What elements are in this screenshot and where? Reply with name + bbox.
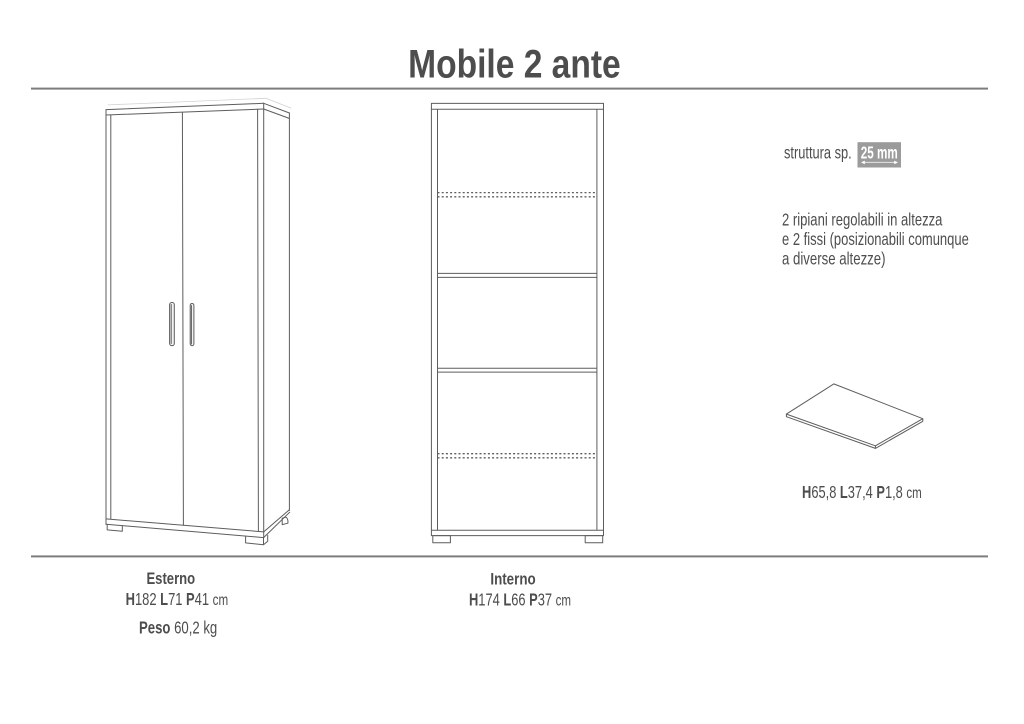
- svg-text:H174 L66 P37 cm: H174 L66 P37 cm: [469, 591, 571, 610]
- svg-text:a diverse altezze): a diverse altezze): [782, 250, 886, 269]
- svg-text:25 mm: 25 mm: [861, 143, 898, 163]
- svg-text:e 2 fissi (posizionabili comun: e 2 fissi (posizionabili comunque: [782, 230, 969, 249]
- svg-text:Peso 60,2 kg: Peso 60,2 kg: [139, 619, 217, 638]
- svg-text:Interno: Interno: [490, 570, 535, 589]
- svg-text:2 ripiani regolabili in altezz: 2 ripiani regolabili in altezza: [782, 211, 943, 230]
- svg-text:struttura sp.: struttura sp.: [784, 144, 852, 164]
- svg-text:Mobile 2 ante: Mobile 2 ante: [408, 42, 621, 86]
- svg-text:H182 L71 P41 cm: H182 L71 P41 cm: [126, 590, 229, 609]
- svg-text:H65,8 L37,4 P1,8 cm: H65,8 L37,4 P1,8 cm: [802, 483, 922, 502]
- svg-text:Esterno: Esterno: [146, 569, 195, 588]
